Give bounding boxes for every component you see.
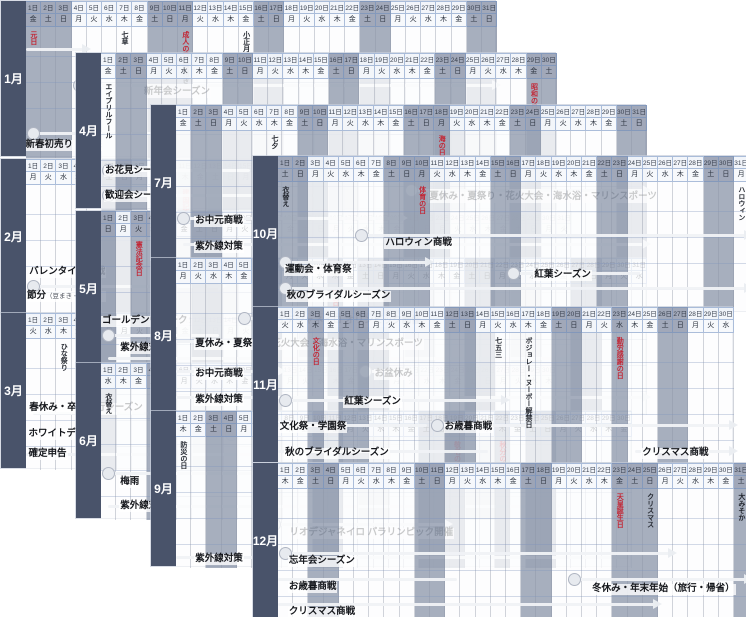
month-panel-11: 1日火2日水3日木4日金5日土6日日7日月8日火9日水10日木11日金12日土1… xyxy=(252,306,733,463)
weekday-cell: 木 xyxy=(673,169,688,182)
season-label-text: お中元商戦 xyxy=(195,368,243,379)
weekday-cell: 日 xyxy=(56,14,71,27)
date-cell: 29日 xyxy=(704,307,719,320)
date-cell: 4日 xyxy=(324,463,339,476)
season-label-text: 文化祭・学園祭 xyxy=(280,421,347,432)
date-cell: 1日 xyxy=(26,1,41,14)
weekday-cell: 日 xyxy=(344,66,359,79)
season-label: 紅葉シーズン xyxy=(343,397,402,408)
bar-start-marker xyxy=(431,419,444,432)
date-cell: 28日 xyxy=(586,105,601,118)
weekday-cell: 日 xyxy=(131,66,146,79)
weekday-cell: 火 xyxy=(354,476,369,489)
date-cell: 23日 xyxy=(612,463,627,476)
weekday-cell: 日 xyxy=(376,14,391,27)
weekday-cell: 日 xyxy=(536,476,551,489)
day-column xyxy=(222,437,237,568)
date-cell: 22日 xyxy=(345,1,360,14)
weekday-cell: 火 xyxy=(324,169,339,182)
weekday-cell: 日 xyxy=(643,476,658,489)
date-cell: 2日 xyxy=(191,105,206,118)
weekday-cell: 月 xyxy=(476,320,491,333)
row-separator xyxy=(278,518,746,519)
weekday-cell: 土 xyxy=(148,14,163,27)
date-cell: 5日 xyxy=(87,1,102,14)
date-cell: 25日 xyxy=(643,463,658,476)
weekday-cell: 月 xyxy=(253,66,268,79)
weekday-cell: 月 xyxy=(445,476,460,489)
date-cell: 5日 xyxy=(339,463,354,476)
season-label-text: 紫外線対策 xyxy=(195,394,243,405)
weekday-cell: 日 xyxy=(430,476,445,489)
weekday-cell: 月 xyxy=(369,320,384,333)
date-cell: 19日 xyxy=(552,156,567,169)
weekday-cell: 水 xyxy=(421,14,436,27)
date-cell: 13日 xyxy=(460,156,475,169)
weekday-cell: 月 xyxy=(434,118,449,131)
weekday-cell: 土 xyxy=(415,476,430,489)
date-cell: 11日 xyxy=(328,105,343,118)
weekday-cell: 火 xyxy=(41,172,56,185)
date-cell: 23日 xyxy=(612,307,627,320)
date-cell: 22日 xyxy=(420,53,435,66)
date-cell: 29日 xyxy=(527,53,542,66)
weekday-cell: 日 xyxy=(526,118,541,131)
month-label: 7月 xyxy=(154,174,173,191)
date-cell: 9日 xyxy=(400,307,415,320)
weekday-cell: 土 xyxy=(339,320,354,333)
date-cell: 8日 xyxy=(384,463,399,476)
date-cell: 2日 xyxy=(191,411,206,424)
date-cell: 20日 xyxy=(465,105,480,118)
date-cell: 6日 xyxy=(177,53,192,66)
weekday-cell: 木 xyxy=(56,326,71,339)
date-cell: 27日 xyxy=(571,105,586,118)
date-cell: 15日 xyxy=(491,156,506,169)
date-cell: 19日 xyxy=(300,1,315,14)
weekday-cell: 水 xyxy=(177,66,192,79)
bar-start-marker xyxy=(507,267,520,280)
date-cell: 13日 xyxy=(460,307,475,320)
season-label: クリスマス商戦 xyxy=(288,607,356,617)
weekday-cell: 土 xyxy=(191,118,206,131)
weekday-cell: 土 xyxy=(116,66,131,79)
date-cell: 25日 xyxy=(643,156,658,169)
weekday-cell: 水 xyxy=(206,271,221,284)
date-cell: 27日 xyxy=(673,156,688,169)
date-cell: 17日 xyxy=(419,105,434,118)
date-cell: 17日 xyxy=(521,463,536,476)
date-cell: 1日 xyxy=(278,463,293,476)
date-cell: 3日 xyxy=(206,105,221,118)
bar-start-marker xyxy=(355,229,368,242)
date-cell: 6日 xyxy=(252,105,267,118)
weekday-cell: 木 xyxy=(192,66,207,79)
month-label: 2月 xyxy=(4,228,23,245)
bar-arrow xyxy=(668,548,677,558)
season-label-text: 紫外線対策 xyxy=(195,241,243,252)
weekday-cell: 火 xyxy=(87,14,102,27)
weekday-cell: 金 xyxy=(26,14,41,27)
date-cell: 23日 xyxy=(612,156,627,169)
weekday-cell: 水 xyxy=(582,476,597,489)
day-column xyxy=(552,182,567,313)
observance-label: 七草 xyxy=(121,31,128,45)
observance-label: ハロウィン xyxy=(738,186,745,221)
weekday-cell: 土 xyxy=(404,118,419,131)
weekday-cell: 木 xyxy=(354,169,369,182)
weekday-cell: 水 xyxy=(56,172,71,185)
season-bar xyxy=(26,48,84,51)
date-cell: 6日 xyxy=(354,307,369,320)
date-cell: 4日 xyxy=(72,1,87,14)
holiday-label: 憲法記念日 xyxy=(135,241,142,276)
date-cell: 22日 xyxy=(597,463,612,476)
weekday-cell: 土 xyxy=(521,476,536,489)
weekday-cell: 金 xyxy=(452,14,467,27)
date-cell: 1日 xyxy=(101,211,116,224)
date-cell: 16日 xyxy=(506,307,521,320)
weekday-cell: 木 xyxy=(460,169,475,182)
date-cell: 18日 xyxy=(536,156,551,169)
season-label: 冬休み・年末年始（旅行・帰省） xyxy=(591,584,736,595)
weekday-cell: 日 xyxy=(400,169,415,182)
weekday-cell: 金 xyxy=(643,320,658,333)
weekday-cell: 水 xyxy=(283,66,298,79)
date-cell: 15日 xyxy=(491,307,506,320)
weekday-cell: 月 xyxy=(466,66,481,79)
weekday-cell: 日 xyxy=(612,169,627,182)
date-cell: 24日 xyxy=(628,156,643,169)
bar-start-marker xyxy=(177,212,190,225)
date-cell: 9日 xyxy=(148,1,163,14)
date-cell: 12日 xyxy=(343,105,358,118)
weekday-cell: 水 xyxy=(476,476,491,489)
row-separator xyxy=(278,544,746,545)
date-cell: 27日 xyxy=(421,1,436,14)
month-label: 12月 xyxy=(253,532,278,549)
holiday-label: 勤労感謝の日 xyxy=(616,337,623,379)
date-cell: 15日 xyxy=(239,1,254,14)
season-label-text: 紫外線対策 xyxy=(195,553,243,564)
weekday-cell: 金 xyxy=(389,118,404,131)
weekday-cell: 金 xyxy=(476,169,491,182)
day-column xyxy=(704,333,719,464)
weekday-cell: 月 xyxy=(541,118,556,131)
observance-label: 七五三 xyxy=(494,337,501,358)
weekday-cell: 金 xyxy=(324,320,339,333)
date-cell: 1日 xyxy=(176,411,191,424)
weekday-cell: 金 xyxy=(369,169,384,182)
weekday-cell: 金 xyxy=(582,169,597,182)
weekday-cell: 土 xyxy=(628,476,643,489)
date-cell: 27日 xyxy=(673,463,688,476)
weekday-cell: 土 xyxy=(445,320,460,333)
date-cell: 2日 xyxy=(41,1,56,14)
weekday-cell: 金 xyxy=(430,320,445,333)
weekday-cell: 金 xyxy=(536,320,551,333)
date-cell: 11日 xyxy=(430,463,445,476)
weekday-cell: 水 xyxy=(41,326,56,339)
season-label: ハロウィン商戦 xyxy=(384,238,453,249)
date-cell: 1日 xyxy=(176,105,191,118)
day-column xyxy=(628,333,643,464)
date-cell: 28日 xyxy=(688,156,703,169)
date-cell: 10日 xyxy=(415,307,430,320)
weekday-cell: 月 xyxy=(308,169,323,182)
date-cell: 20日 xyxy=(315,1,330,14)
weekday-cell: 水 xyxy=(552,169,567,182)
weekday-cell: 土 xyxy=(329,66,344,79)
date-cell: 19日 xyxy=(450,105,465,118)
weekday-cell: 月 xyxy=(391,14,406,27)
month-label: 5月 xyxy=(79,280,98,297)
date-cell: 25日 xyxy=(466,53,481,66)
weekday-cell: 月 xyxy=(116,224,131,237)
day-column xyxy=(597,182,612,313)
date-cell: 18日 xyxy=(536,307,551,320)
date-cell: 5日 xyxy=(339,156,354,169)
date-cell: 22日 xyxy=(495,105,510,118)
weekday-cell: 金 xyxy=(345,14,360,27)
weekday-cell: 月 xyxy=(628,169,643,182)
weekday-cell: 火 xyxy=(481,66,496,79)
weekday-cell: 火 xyxy=(268,66,283,79)
date-cell: 16日 xyxy=(254,1,269,14)
season-label-text: 紅葉シーズン xyxy=(344,396,401,407)
date-cell: 2日 xyxy=(293,307,308,320)
date-cell: 13日 xyxy=(460,463,475,476)
date-cell: 7日 xyxy=(369,463,384,476)
season-label-text: クリスマス商戦 xyxy=(642,447,708,458)
day-column xyxy=(688,333,703,464)
weekday-cell: 土 xyxy=(704,169,719,182)
date-cell: 10日 xyxy=(313,105,328,118)
weekday-cell: 木 xyxy=(374,118,389,131)
date-cell: 12日 xyxy=(193,1,208,14)
month-label-strip: 3月 xyxy=(1,313,26,468)
day-column xyxy=(597,333,612,464)
month-label-strip: 9月 xyxy=(151,411,176,566)
weekday-cell: 日 xyxy=(482,14,497,27)
weekday-cell: 月 xyxy=(26,172,41,185)
weekday-cell: 土 xyxy=(658,320,673,333)
date-cell: 3日 xyxy=(308,463,323,476)
date-cell: 26日 xyxy=(658,463,673,476)
season-label: 紫外線対策 xyxy=(194,395,244,406)
month-panel-12: 1日木2日金3日土4日日5日月6日火7日水8日木9日金10日土11日日12日月1… xyxy=(252,462,746,617)
date-cell: 10日 xyxy=(415,463,430,476)
bar-start-marker xyxy=(102,467,115,480)
weekday-cell: 日 xyxy=(451,66,466,79)
date-cell: 25日 xyxy=(643,307,658,320)
season-label-text: 秋のブライダルシーズン xyxy=(287,290,391,301)
weekday-cell: 月 xyxy=(178,14,193,27)
day-column xyxy=(704,182,719,313)
date-cell: 21日 xyxy=(582,156,597,169)
date-cell: 14日 xyxy=(374,105,389,118)
date-cell: 5日 xyxy=(237,411,252,424)
weekday-cell: 水 xyxy=(390,66,405,79)
month-label-strip: 6月 xyxy=(76,363,101,518)
weekday-cell: 水 xyxy=(688,476,703,489)
weekday-cell: 水 xyxy=(293,320,308,333)
date-cell: 3日 xyxy=(56,313,71,326)
date-cell: 21日 xyxy=(330,1,345,14)
weekday-cell: 木 xyxy=(224,14,239,27)
holiday-label: 天皇誕生日 xyxy=(616,493,623,528)
row-separator xyxy=(278,211,746,212)
day-column xyxy=(658,182,673,313)
date-cell: 4日 xyxy=(324,156,339,169)
date-cell: 1日 xyxy=(26,159,41,172)
observance-label: ボジョレー・ヌーボー解禁日 xyxy=(525,337,532,428)
day-column xyxy=(567,182,582,313)
date-cell: 30日 xyxy=(719,307,734,320)
season-label: お歳暮商戦 xyxy=(444,422,494,433)
weekday-cell: 金 xyxy=(207,66,222,79)
date-cell: 26日 xyxy=(556,105,571,118)
date-cell: 8日 xyxy=(384,156,399,169)
weekday-cell: 木 xyxy=(267,118,282,131)
holiday-label: 海の日 xyxy=(438,135,445,156)
season-label: 文化祭・学園祭 xyxy=(279,422,348,433)
holiday-label: 文化の日 xyxy=(312,337,319,365)
weekday-cell: 日 xyxy=(101,224,116,237)
date-cell: 4日 xyxy=(324,307,339,320)
weekday-cell: 木 xyxy=(176,424,191,437)
month-label-strip: 11月 xyxy=(253,307,278,462)
date-cell: 7日 xyxy=(117,1,132,14)
date-cell: 5日 xyxy=(237,105,252,118)
row-separator xyxy=(278,596,746,597)
date-cell: 27日 xyxy=(673,307,688,320)
date-cell: 18日 xyxy=(284,1,299,14)
day-column xyxy=(536,182,551,313)
weekday-cell: 月 xyxy=(328,118,343,131)
date-cell: 30日 xyxy=(467,1,482,14)
day-column xyxy=(688,182,703,313)
row-separator xyxy=(278,362,734,363)
weekday-cell: 木 xyxy=(308,320,323,333)
date-cell: 3日 xyxy=(131,53,146,66)
weekday-cell: 土 xyxy=(308,476,323,489)
weekday-cell: 火 xyxy=(450,118,465,131)
observance-label: 防災の日 xyxy=(180,441,187,469)
day-column xyxy=(628,182,643,313)
weekday-cell: 火 xyxy=(704,320,719,333)
observance-label: 衣替え xyxy=(105,393,112,414)
weekday-cell: 土 xyxy=(734,476,746,489)
season-label: 確定申告 xyxy=(28,449,68,460)
month-label-strip: 4月 xyxy=(76,53,101,208)
season-label: 運動会・体育祭 xyxy=(284,265,353,276)
date-cell: 8日 xyxy=(282,105,297,118)
weekday-cell: 土 xyxy=(597,169,612,182)
weekday-cell: 金 xyxy=(602,118,617,131)
weekday-cell: 日 xyxy=(673,320,688,333)
date-cell: 22日 xyxy=(597,156,612,169)
weekday-cell: 金 xyxy=(131,376,146,389)
day-column xyxy=(688,489,703,617)
date-cell: 2日 xyxy=(191,258,206,271)
date-cell: 17日 xyxy=(269,1,284,14)
weekday-cell: 水 xyxy=(400,320,415,333)
date-cell: 6日 xyxy=(102,1,117,14)
weekday-cell: 水 xyxy=(719,320,734,333)
date-cell: 26日 xyxy=(658,156,673,169)
date-cell: 28日 xyxy=(688,463,703,476)
weekday-cell: 月 xyxy=(415,169,430,182)
date-cell: 12日 xyxy=(445,156,460,169)
date-cell: 3日 xyxy=(308,307,323,320)
weekday-cell: 火 xyxy=(406,14,421,27)
weekday-cell: 金 xyxy=(506,476,521,489)
date-cell: 2日 xyxy=(293,156,308,169)
weekday-cell: 金 xyxy=(176,118,191,131)
date-cell: 1日 xyxy=(101,53,116,66)
weekday-cell: 日 xyxy=(206,118,221,131)
weekday-cell: 月 xyxy=(658,476,673,489)
date-cell: 2日 xyxy=(293,463,308,476)
day-column xyxy=(521,182,536,313)
weekday-cell: 火 xyxy=(343,118,358,131)
month-label: 10月 xyxy=(253,225,278,242)
weekday-cell: 水 xyxy=(358,118,373,131)
season-label-text: お歳暮商戦 xyxy=(445,421,493,432)
date-cell: 13日 xyxy=(283,53,298,66)
month-label: 11月 xyxy=(253,376,278,393)
weekday-cell: 日 xyxy=(354,320,369,333)
weekday-cell: 火 xyxy=(430,169,445,182)
date-cell: 10日 xyxy=(163,1,178,14)
weekday-cell: 金 xyxy=(237,271,252,284)
date-cell: 17日 xyxy=(521,156,536,169)
weekday-cell: 火 xyxy=(193,14,208,27)
weekday-cell: 火 xyxy=(673,476,688,489)
date-cell: 2日 xyxy=(116,363,131,376)
observance-label: エイプリルフール xyxy=(105,83,112,139)
month-label: 3月 xyxy=(4,382,23,399)
weekday-cell: 金 xyxy=(132,14,147,27)
date-cell: 17日 xyxy=(521,307,536,320)
date-cell: 29日 xyxy=(602,105,617,118)
date-cell: 11日 xyxy=(178,1,193,14)
date-cell: 24日 xyxy=(628,307,643,320)
day-column xyxy=(237,437,252,568)
weekday-cell: 月 xyxy=(176,271,191,284)
date-cell: 18日 xyxy=(359,53,374,66)
weekday-cell: 火 xyxy=(567,476,582,489)
date-cell: 9日 xyxy=(298,105,313,118)
weekday-cell: 金 xyxy=(293,476,308,489)
weekday-cell: 水 xyxy=(369,476,384,489)
date-cell: 3日 xyxy=(206,411,221,424)
row-separator xyxy=(278,440,734,441)
observance-label: クリスマス xyxy=(646,493,653,528)
weekday-cell: 木 xyxy=(597,476,612,489)
date-cell: 1日 xyxy=(26,313,41,326)
date-cell: 16日 xyxy=(506,156,521,169)
observance-label: 大みそか xyxy=(738,493,745,521)
date-cell: 8日 xyxy=(132,1,147,14)
date-cell: 28日 xyxy=(436,1,451,14)
date-cell: 19日 xyxy=(552,463,567,476)
weekday-cell: 火 xyxy=(162,66,177,79)
weekday-cell: 火 xyxy=(491,320,506,333)
weekday-cell: 木 xyxy=(521,320,536,333)
weekday-cell: 土 xyxy=(298,118,313,131)
